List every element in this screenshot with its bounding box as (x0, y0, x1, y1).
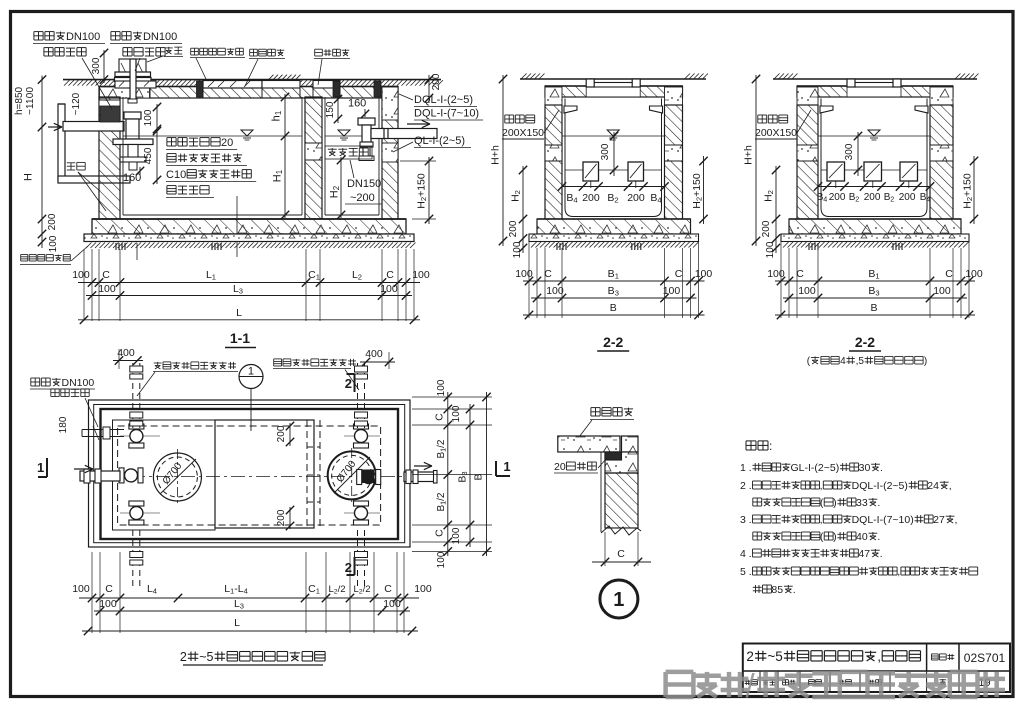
svg-text:30: 30 (859, 462, 871, 474)
svg-text:2-2: 2-2 (603, 334, 623, 350)
svg-text:B: B (566, 192, 573, 204)
svg-text:2: 2 (855, 195, 859, 204)
svg-text:2: 2 (345, 560, 352, 575)
svg-text:.: . (877, 531, 880, 543)
svg-text:H+h: H+h (742, 145, 754, 165)
svg-text:100: 100 (48, 235, 59, 252)
svg-text:200: 200 (47, 213, 58, 230)
svg-text:100: 100 (695, 268, 713, 280)
svg-text:100: 100 (933, 285, 951, 297)
svg-text:300: 300 (91, 57, 102, 74)
svg-text:1: 1 (37, 460, 44, 475)
svg-text:100: 100 (451, 527, 462, 544)
svg-text:200: 200 (864, 192, 881, 203)
svg-text:2: 2 (180, 650, 187, 664)
svg-text:200X150: 200X150 (755, 127, 797, 139)
svg-text:H: H (961, 201, 973, 209)
svg-text:B: B (871, 302, 878, 314)
svg-text:400: 400 (117, 347, 135, 359)
svg-text:H: H (272, 174, 284, 182)
svg-text:H: H (691, 201, 703, 209)
svg-text:.: . (880, 548, 883, 560)
svg-text:150: 150 (325, 101, 336, 118)
svg-text:2: 2 (332, 186, 341, 190)
svg-text:(: ( (820, 531, 824, 543)
svg-text:100: 100 (98, 283, 116, 295)
svg-text:+150: +150 (415, 173, 427, 197)
svg-text:02S701: 02S701 (964, 651, 1006, 665)
svg-text:4: 4 (823, 195, 827, 204)
svg-text:1: 1 (316, 273, 320, 282)
svg-text:H: H (23, 173, 35, 181)
svg-text:H: H (762, 194, 774, 202)
svg-text:B: B (608, 285, 615, 297)
svg-text:C10: C10 (166, 169, 186, 181)
svg-text:~5: ~5 (199, 650, 213, 664)
svg-text:C: C (105, 583, 113, 595)
svg-text:,: , (897, 566, 900, 578)
svg-text:1: 1 (503, 459, 510, 474)
svg-text:180: 180 (58, 416, 69, 433)
svg-text:B: B (610, 302, 617, 314)
svg-text:~5: ~5 (767, 649, 782, 664)
svg-text:(: ( (820, 497, 824, 509)
svg-text:.: . (877, 497, 880, 509)
svg-text:4: 4 (926, 195, 930, 204)
svg-text:200: 200 (276, 509, 287, 526)
svg-text:3: 3 (460, 471, 469, 475)
svg-text:C: C (796, 268, 804, 280)
svg-text:200: 200 (508, 220, 519, 237)
svg-text:DN100: DN100 (66, 31, 100, 43)
svg-text:40: 40 (856, 531, 868, 543)
svg-text:): ) (833, 497, 837, 509)
svg-text:100: 100 (663, 285, 681, 297)
svg-text:B: B (650, 192, 657, 204)
svg-text:C: C (675, 268, 683, 280)
svg-text:/2: /2 (436, 492, 447, 501)
svg-text:100: 100 (99, 598, 117, 610)
svg-text:~200: ~200 (350, 192, 375, 204)
svg-text:1: 1 (613, 589, 624, 611)
svg-text:h=850: h=850 (14, 86, 25, 115)
svg-text:1: 1 (615, 272, 619, 281)
svg-text:1: 1 (212, 273, 216, 282)
svg-text:1: 1 (316, 587, 320, 596)
svg-text:4: 4 (840, 356, 846, 367)
svg-text:100: 100 (767, 268, 785, 280)
svg-text:): ) (833, 531, 837, 543)
svg-text:GL-I-(2~5): GL-I-(2~5) (791, 462, 840, 474)
svg-text:4: 4 (153, 587, 157, 596)
svg-text:100: 100 (72, 269, 90, 281)
svg-text:C: C (945, 268, 953, 280)
svg-text:DN150: DN150 (347, 178, 381, 190)
svg-text:/: / (746, 667, 756, 704)
svg-text:): ) (924, 356, 927, 367)
svg-text:3: 3 (240, 602, 244, 611)
svg-text:400: 400 (365, 348, 383, 360)
svg-text:2: 2 (890, 195, 894, 204)
svg-text:1: 1 (248, 366, 254, 378)
svg-text:100: 100 (143, 109, 154, 126)
svg-text:DQL-I-(7~10): DQL-I-(7~10) (414, 108, 479, 120)
svg-text:+150: +150 (691, 173, 703, 197)
svg-text:H+h: H+h (489, 145, 501, 165)
svg-text:200: 200 (829, 192, 846, 203)
svg-text:2: 2 (358, 273, 362, 282)
svg-text:160: 160 (123, 172, 141, 184)
svg-text:3: 3 (875, 289, 879, 298)
svg-text:~120: ~120 (71, 92, 82, 115)
svg-text:C: C (433, 529, 445, 537)
svg-text:100: 100 (546, 285, 564, 297)
svg-text:.: . (880, 462, 883, 474)
svg-text:B: B (607, 192, 614, 204)
svg-text:100: 100 (436, 379, 447, 396)
svg-text:2-2: 2-2 (855, 334, 875, 350)
svg-text:+150: +150 (961, 173, 973, 197)
svg-text:H: H (329, 190, 341, 198)
svg-text:33: 33 (856, 497, 868, 509)
svg-text:4: 4 (244, 587, 248, 596)
svg-text:1: 1 (274, 111, 283, 115)
svg-text:200: 200 (627, 192, 645, 204)
svg-text:1-1: 1-1 (230, 330, 250, 346)
svg-text:100: 100 (515, 268, 533, 280)
svg-text:,: , (949, 480, 952, 492)
svg-text:100: 100 (414, 583, 432, 595)
svg-text:100: 100 (412, 269, 430, 281)
svg-text:DN100: DN100 (143, 31, 177, 43)
svg-text:100: 100 (72, 583, 90, 595)
svg-text:100: 100 (512, 241, 523, 258)
svg-text:B: B (472, 473, 484, 480)
svg-text:,: , (955, 514, 958, 526)
svg-text:300: 300 (844, 143, 855, 160)
svg-text::: : (769, 439, 772, 453)
svg-text:200: 200 (899, 192, 916, 203)
svg-text:H: H (509, 194, 521, 202)
svg-text:C: C (386, 269, 394, 281)
svg-text:1: 1 (875, 272, 879, 281)
svg-text:C: C (544, 268, 552, 280)
svg-text:QL-I-(2~5): QL-I-(2~5) (414, 135, 465, 147)
svg-text:L: L (236, 307, 242, 319)
svg-text:20: 20 (554, 461, 566, 473)
svg-text:C: C (102, 269, 110, 281)
svg-text:C: C (617, 548, 625, 560)
svg-text:~1100: ~1100 (25, 86, 36, 115)
svg-text:4: 4 (657, 196, 661, 205)
svg-text:100: 100 (765, 241, 776, 258)
svg-text:,5: ,5 (856, 356, 865, 367)
svg-text:47: 47 (858, 548, 870, 560)
svg-text:2: 2 (746, 649, 754, 664)
svg-text:3: 3 (615, 289, 619, 298)
svg-text:300: 300 (600, 143, 611, 160)
svg-text:C: C (433, 413, 445, 421)
svg-text:200: 200 (276, 425, 287, 442)
svg-text:L: L (234, 617, 240, 629)
svg-text:85: 85 (771, 584, 783, 596)
svg-text:H: H (415, 201, 427, 209)
svg-text:/2: /2 (436, 439, 447, 448)
svg-text:B: B (608, 268, 615, 280)
svg-text:1: 1 (275, 170, 284, 174)
svg-text:B: B (868, 268, 875, 280)
svg-text:/2: /2 (363, 584, 371, 595)
svg-text:C: C (384, 583, 392, 595)
svg-text:100: 100 (380, 283, 398, 295)
svg-text:4: 4 (573, 196, 577, 205)
svg-text:,: , (820, 514, 823, 526)
svg-text:27: 27 (933, 514, 945, 526)
svg-text:3: 3 (239, 287, 243, 296)
svg-text:-L: -L (234, 583, 243, 595)
svg-text:,: , (820, 480, 823, 492)
svg-text:200: 200 (582, 192, 600, 204)
svg-text:B: B (868, 285, 875, 297)
svg-text:100: 100 (436, 551, 447, 568)
svg-text:2: 2 (766, 190, 775, 194)
svg-text:2: 2 (614, 196, 618, 205)
svg-text:DQL-I-(2~5): DQL-I-(2~5) (414, 94, 473, 106)
svg-text:100: 100 (451, 405, 462, 422)
svg-text:.: . (793, 584, 796, 596)
svg-text:160: 160 (348, 98, 366, 110)
svg-text:B: B (456, 476, 468, 483)
svg-text:DQL-I-(7~10): DQL-I-(7~10) (852, 514, 914, 526)
svg-text:100: 100 (965, 268, 983, 280)
svg-text:DQL-I-(2~5): DQL-I-(2~5) (852, 480, 908, 492)
svg-text:DN100: DN100 (62, 377, 95, 389)
svg-text:/2: /2 (338, 584, 346, 595)
svg-text:20: 20 (221, 137, 233, 149)
svg-text:450: 450 (143, 147, 154, 164)
svg-text:,: , (877, 649, 881, 664)
svg-text:2: 2 (513, 190, 522, 194)
svg-text:24: 24 (927, 480, 939, 492)
svg-text:100: 100 (383, 598, 401, 610)
svg-text:200: 200 (431, 73, 442, 90)
svg-text:200: 200 (761, 220, 772, 237)
svg-text:100: 100 (798, 285, 816, 297)
svg-text:200X150: 200X150 (502, 127, 544, 139)
